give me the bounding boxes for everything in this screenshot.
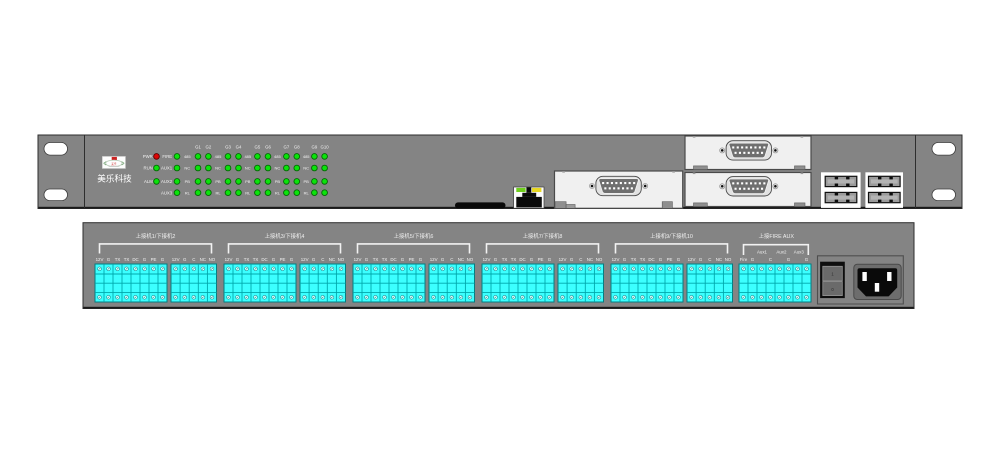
- svg-text:NO: NO: [725, 257, 732, 262]
- svg-text:DC: DC: [648, 257, 654, 262]
- svg-text:485: 485: [244, 154, 251, 159]
- svg-text:NO: NO: [338, 257, 345, 262]
- svg-text:G: G: [441, 257, 445, 262]
- svg-text:G: G: [290, 257, 294, 262]
- svg-text:12V: 12V: [430, 257, 438, 262]
- svg-text:G: G: [236, 257, 240, 262]
- svg-text:NC: NC: [200, 257, 206, 262]
- svg-text:DC: DC: [390, 257, 396, 262]
- svg-text:NC: NC: [215, 166, 221, 171]
- svg-text:Fire: Fire: [740, 257, 748, 262]
- svg-text:G: G: [659, 257, 663, 262]
- svg-text:NO: NO: [209, 257, 216, 262]
- svg-text:RL: RL: [304, 190, 310, 195]
- svg-text:G4: G4: [236, 144, 242, 149]
- svg-text:NC: NC: [303, 166, 309, 171]
- svg-text:G1: G1: [195, 144, 201, 149]
- svg-text:上接机7/下接机8: 上接机7/下接机8: [523, 232, 563, 240]
- svg-text:RL: RL: [215, 190, 221, 195]
- svg-text:Aux2: Aux2: [776, 249, 787, 254]
- svg-text:G: G: [623, 257, 627, 262]
- svg-text:NC: NC: [329, 257, 335, 262]
- svg-text:PWR: PWR: [143, 154, 153, 159]
- svg-text:G: G: [494, 257, 498, 262]
- svg-text:AUX1: AUX1: [161, 166, 173, 171]
- svg-text:上接机1/下接机2: 上接机1/下接机2: [136, 232, 176, 240]
- svg-text:G: G: [751, 257, 755, 262]
- svg-text:G: G: [530, 257, 534, 262]
- svg-text:G: G: [570, 257, 574, 262]
- svg-text:G8: G8: [294, 144, 300, 149]
- svg-text:NC: NC: [184, 166, 190, 171]
- svg-text:NC: NC: [587, 257, 593, 262]
- svg-text:DC: DC: [132, 257, 138, 262]
- svg-text:485: 485: [215, 154, 222, 159]
- svg-text:G: G: [107, 257, 111, 262]
- svg-text:PE: PE: [280, 257, 286, 262]
- svg-text:ALM: ALM: [144, 179, 153, 184]
- svg-text:C: C: [769, 257, 772, 262]
- svg-text:G6: G6: [265, 144, 271, 149]
- svg-text:TX: TX: [253, 257, 259, 262]
- svg-text:PE: PE: [667, 257, 673, 262]
- svg-text:NC: NC: [275, 166, 281, 171]
- svg-text:G: G: [161, 257, 165, 262]
- svg-text:TX: TX: [631, 257, 637, 262]
- svg-text:上接FIRE AUX: 上接FIRE AUX: [759, 232, 795, 240]
- svg-text:PB: PB: [215, 179, 221, 184]
- svg-text:NC: NC: [458, 257, 464, 262]
- svg-text:G: G: [312, 257, 316, 262]
- svg-text:G5: G5: [255, 144, 261, 149]
- svg-text:C: C: [579, 257, 582, 262]
- svg-text:12V: 12V: [559, 257, 567, 262]
- svg-text:PE: PE: [538, 257, 544, 262]
- svg-text:G: G: [272, 257, 276, 262]
- svg-text:G7: G7: [284, 144, 290, 149]
- svg-text:G: G: [401, 257, 405, 262]
- svg-text:C: C: [708, 257, 711, 262]
- svg-text:G: G: [419, 257, 423, 262]
- svg-text:G: G: [365, 257, 369, 262]
- svg-text:PE: PE: [409, 257, 415, 262]
- svg-text:12V: 12V: [301, 257, 309, 262]
- svg-text:PB: PB: [185, 179, 191, 184]
- svg-text:C: C: [321, 257, 324, 262]
- svg-text:TX: TX: [382, 257, 388, 262]
- svg-text:NO: NO: [467, 257, 474, 262]
- svg-text:上接机9/下接机10: 上接机9/下接机10: [650, 232, 693, 240]
- svg-text:485: 485: [184, 154, 191, 159]
- svg-text:485: 485: [303, 154, 310, 159]
- svg-text:PB: PB: [304, 179, 310, 184]
- svg-text:PB: PB: [275, 179, 281, 184]
- svg-text:RL: RL: [275, 190, 281, 195]
- svg-text:NC: NC: [245, 166, 251, 171]
- svg-text:TX: TX: [124, 257, 130, 262]
- svg-text:12V: 12V: [225, 257, 233, 262]
- svg-text:TX: TX: [115, 257, 121, 262]
- svg-text:G: G: [143, 257, 147, 262]
- svg-text:DC: DC: [519, 257, 525, 262]
- svg-text:TX: TX: [511, 257, 517, 262]
- svg-text:AUX3: AUX3: [161, 190, 173, 195]
- svg-text:G: G: [183, 257, 187, 262]
- svg-text:12V: 12V: [483, 257, 491, 262]
- svg-text:TX: TX: [502, 257, 508, 262]
- svg-text:G2: G2: [206, 144, 212, 149]
- svg-text:NO: NO: [596, 257, 603, 262]
- svg-text:12V: 12V: [688, 257, 696, 262]
- svg-text:TX: TX: [244, 257, 250, 262]
- svg-text:C: C: [192, 257, 195, 262]
- svg-text:G: G: [677, 257, 681, 262]
- svg-text:FIRE: FIRE: [162, 154, 172, 159]
- svg-text:上接机5/下接机6: 上接机5/下接机6: [394, 232, 434, 240]
- svg-text:DC: DC: [261, 257, 267, 262]
- svg-text:G: G: [805, 257, 809, 262]
- svg-text:12V: 12V: [96, 257, 104, 262]
- svg-text:G10: G10: [321, 144, 330, 149]
- svg-text:12V: 12V: [172, 257, 180, 262]
- svg-text:C: C: [450, 257, 453, 262]
- svg-text:美乐科技: 美乐科技: [97, 172, 132, 183]
- svg-text:12V: 12V: [354, 257, 362, 262]
- svg-text:RL: RL: [245, 190, 251, 195]
- svg-text:485: 485: [274, 154, 281, 159]
- svg-text:上接机3/下接机4: 上接机3/下接机4: [265, 232, 305, 240]
- svg-text:G: G: [548, 257, 552, 262]
- svg-text:G: G: [787, 257, 791, 262]
- svg-text:美乐: 美乐: [111, 162, 117, 166]
- svg-text:AUX2: AUX2: [161, 179, 173, 184]
- svg-text:PE: PE: [151, 257, 157, 262]
- svg-text:Aux1: Aux1: [757, 249, 768, 254]
- svg-text:TX: TX: [373, 257, 379, 262]
- svg-text:TX: TX: [640, 257, 646, 262]
- svg-text:G: G: [699, 257, 703, 262]
- svg-text:PB: PB: [245, 179, 251, 184]
- svg-text:NC: NC: [716, 257, 722, 262]
- svg-text:Aux3: Aux3: [794, 249, 805, 254]
- svg-text:G9: G9: [312, 144, 318, 149]
- svg-text:G3: G3: [225, 144, 231, 149]
- svg-text:RUN: RUN: [143, 166, 152, 171]
- svg-text:12V: 12V: [612, 257, 620, 262]
- svg-text:RL: RL: [185, 190, 191, 195]
